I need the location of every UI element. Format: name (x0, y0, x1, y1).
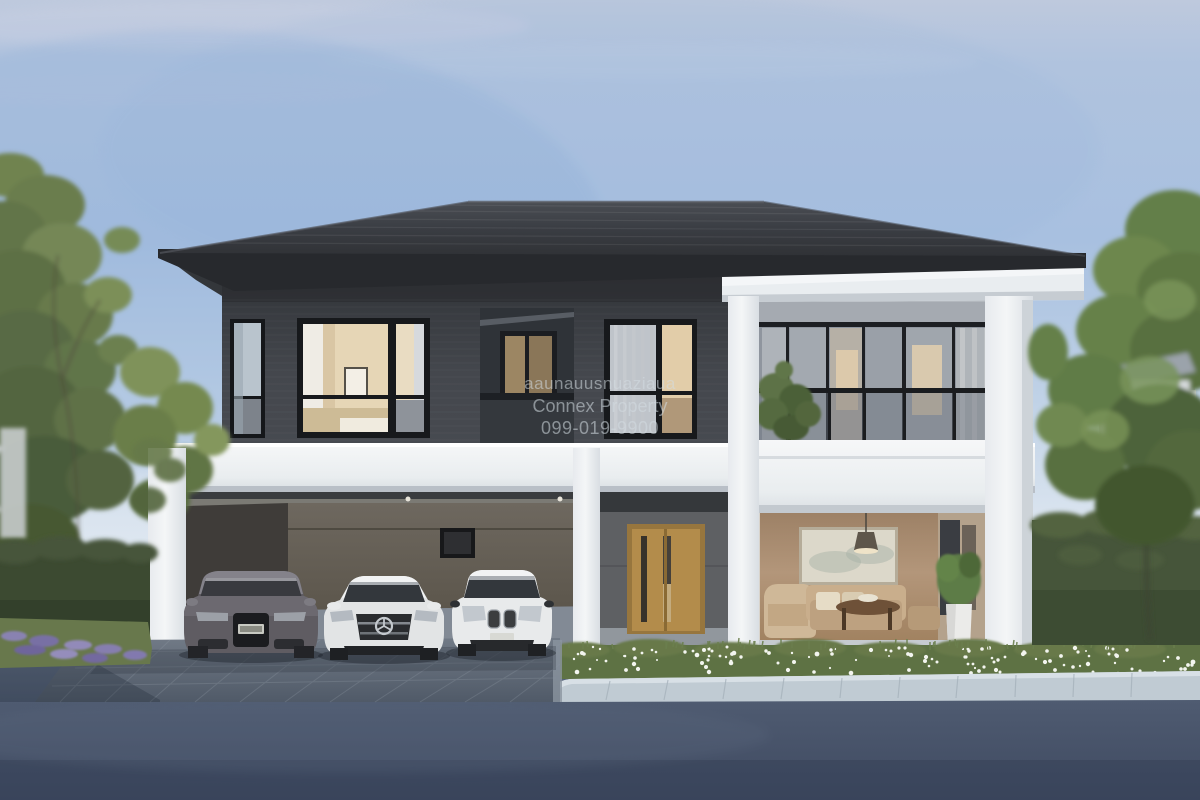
svg-text:aaunauusnuaziaua: aaunauusnuaziaua (524, 374, 676, 393)
svg-text:099-019-9900: 099-019-9900 (541, 418, 659, 438)
svg-text:Connex Property: Connex Property (532, 396, 667, 416)
